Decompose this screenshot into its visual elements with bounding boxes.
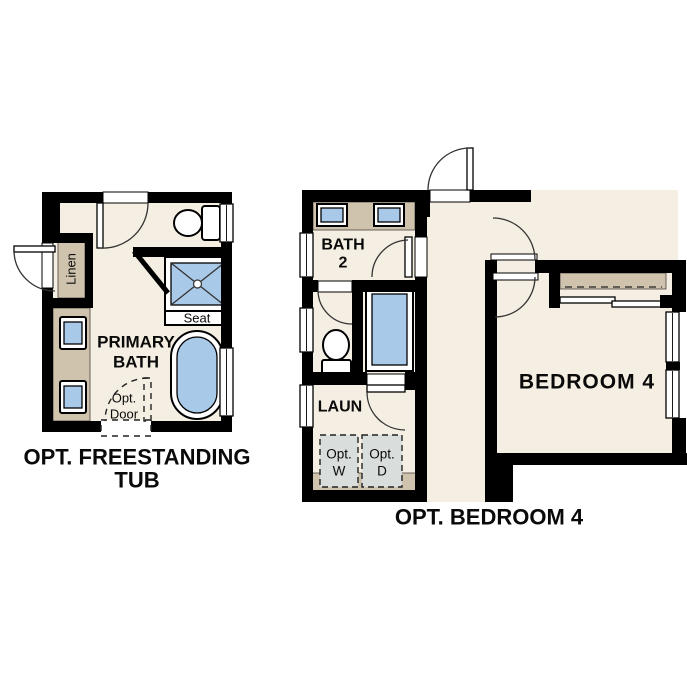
washer-label-line2: W	[333, 464, 346, 479]
wall-segment	[42, 288, 53, 432]
opt-door-label-line2: Door	[110, 407, 139, 422]
door-opening	[415, 237, 427, 277]
vanity-sink-basin	[64, 386, 82, 408]
wall-segment	[549, 260, 560, 308]
primary-bath-label-line1: PRIMARY	[97, 333, 175, 352]
wall-segment	[672, 260, 686, 312]
door-swing-arc	[428, 148, 470, 190]
door-opening	[318, 281, 352, 292]
left-plan-caption-line2: TUB	[114, 468, 159, 493]
door-opening	[367, 374, 405, 385]
bath2-label-line1: BATH	[321, 237, 364, 254]
wall-segment	[133, 247, 221, 257]
door-jamb-strip	[493, 273, 538, 280]
wall-segment	[302, 190, 313, 233]
wall-segment	[352, 280, 415, 292]
wall-segment	[513, 453, 687, 465]
wall-segment	[672, 418, 686, 465]
vanity-sink-basin	[64, 322, 82, 344]
bath2-label-line2: 2	[339, 255, 348, 272]
wall-segment	[415, 277, 427, 385]
wall-segment	[470, 190, 531, 202]
wall-segment	[415, 390, 427, 502]
wall-segment	[666, 362, 680, 370]
right-plan: BATH 2 LAUN Opt. W Opt. D BEDROOM 4 OPT.…	[300, 148, 687, 530]
bedroom4-floor	[497, 262, 672, 465]
washer-label-line1: Opt.	[326, 447, 352, 462]
toilet-bowl	[323, 330, 349, 360]
toilet-tank	[322, 360, 351, 374]
door-opening	[430, 190, 470, 202]
right-plan-caption: OPT. BEDROOM 4	[395, 505, 584, 530]
laundry-label: LAUN	[318, 399, 362, 416]
wall-segment	[302, 372, 367, 385]
wall-segment	[417, 190, 430, 217]
left-plan: Linen Seat PRIMARY BATH Opt. Door OPT. F…	[14, 192, 250, 493]
wall-segment	[302, 277, 313, 308]
wall-segment	[352, 292, 363, 372]
freestanding-tub-basin	[177, 337, 217, 413]
door-leaf	[467, 148, 473, 190]
wall-segment	[302, 490, 427, 502]
seat-label: Seat	[184, 311, 211, 326]
bath2-tub-basin	[372, 294, 407, 365]
closet-bypass-door	[560, 297, 615, 303]
primary-bath-label-line2: BATH	[113, 353, 159, 372]
door-jamb-strip	[491, 254, 537, 260]
door-leaf	[367, 385, 405, 392]
toilet-tank	[202, 206, 220, 240]
wall-segment	[302, 190, 427, 202]
door-opening	[103, 192, 148, 203]
wall-segment	[85, 240, 93, 300]
vanity-sink-basin	[321, 208, 343, 222]
wall-segment	[660, 295, 674, 308]
wall-segment	[405, 372, 427, 390]
dryer-label-line1: Opt.	[369, 447, 395, 462]
wall-segment	[485, 260, 497, 453]
floor-plan-canvas: Linen Seat PRIMARY BATH Opt. Door OPT. F…	[0, 0, 687, 687]
left-plan-caption-line1: OPT. FREESTANDING	[24, 445, 251, 470]
door-leaf	[97, 203, 103, 248]
vanity-sink-basin	[378, 208, 400, 222]
linen-label: Linen	[64, 253, 79, 285]
wall-segment	[53, 298, 93, 308]
wall-segment	[485, 453, 513, 502]
dryer-label-line2: D	[377, 464, 387, 479]
wall-segment	[313, 280, 318, 292]
optional-door-opening	[101, 420, 151, 436]
shower-drain	[194, 280, 202, 288]
door-leaf	[14, 246, 55, 252]
floorplan-page: Linen Seat PRIMARY BATH Opt. Door OPT. F…	[0, 0, 687, 687]
toilet-bowl	[174, 210, 202, 236]
closet-bypass-door	[612, 301, 668, 307]
opt-door-label-line1: Opt.	[112, 391, 137, 406]
door-leaf	[405, 237, 412, 277]
bedroom4-label: BEDROOM 4	[519, 371, 655, 394]
